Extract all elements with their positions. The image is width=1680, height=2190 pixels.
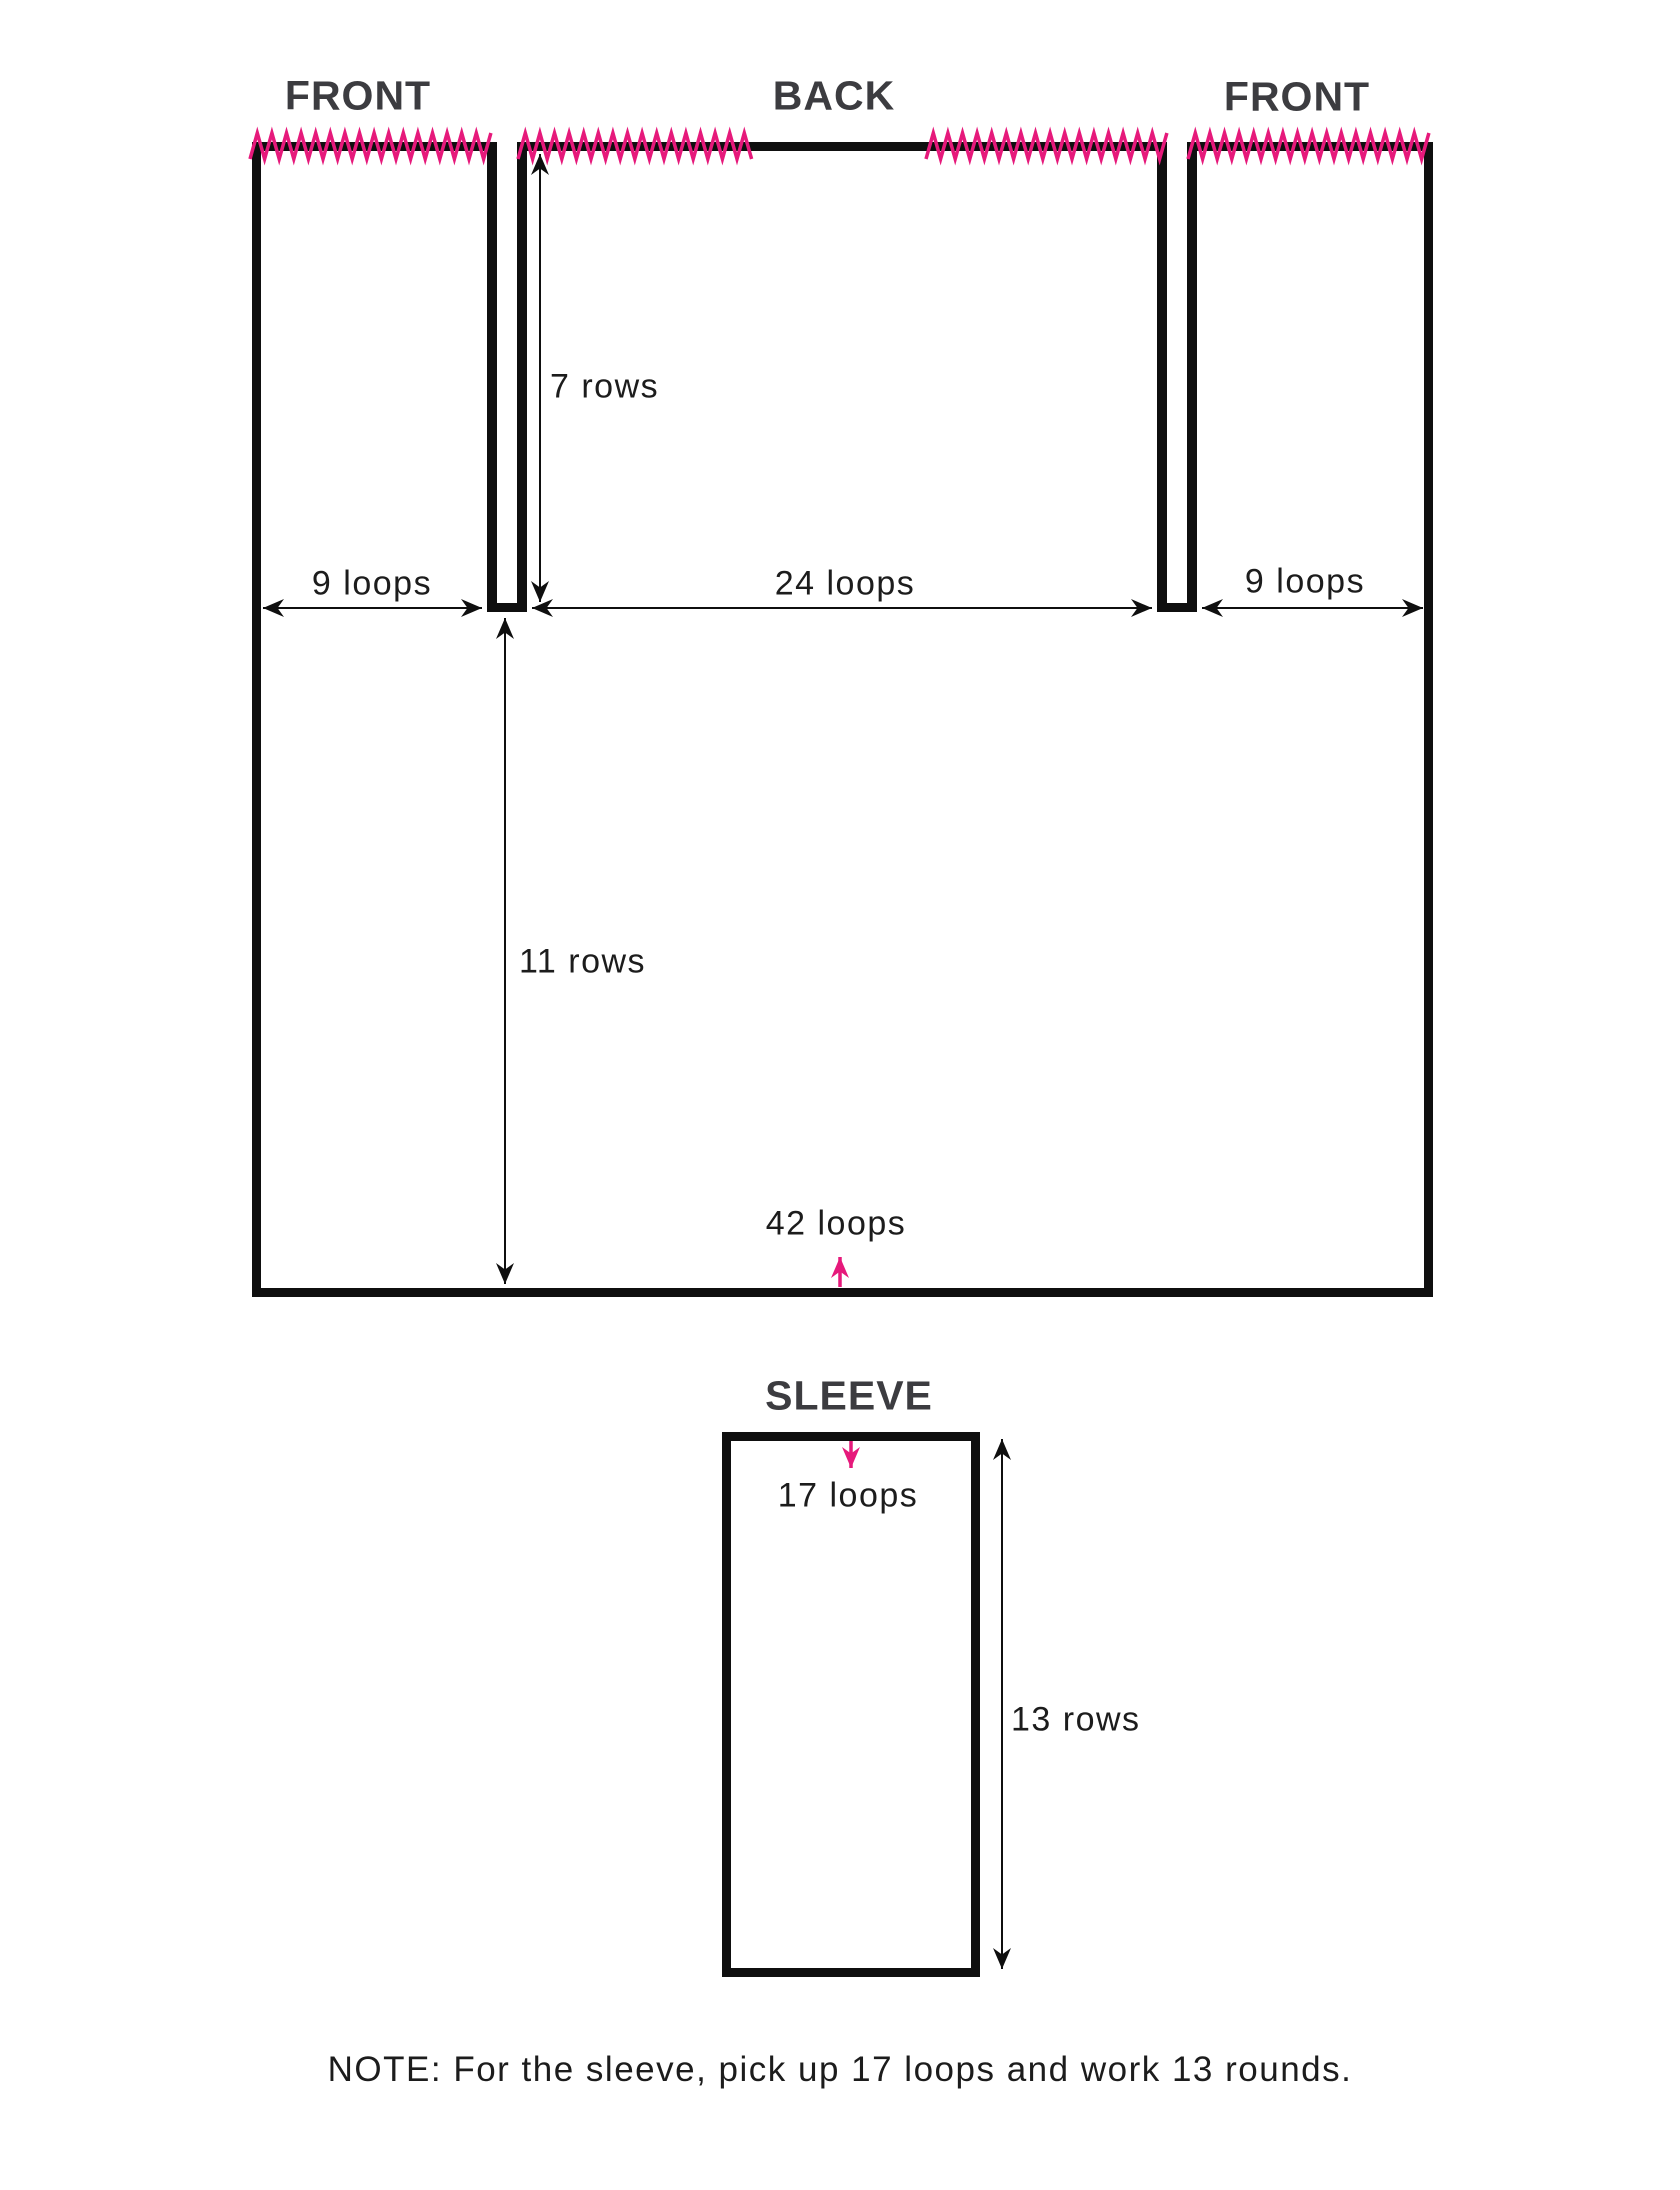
label-front-left-width: 9 loops	[312, 565, 432, 604]
note-text: NOTE: For the sleeve, pick up 17 loops a…	[0, 2050, 1680, 2090]
panel-title-front-right: FRONT	[1224, 74, 1370, 121]
label-front-right-width: 9 loops	[1245, 563, 1365, 602]
panel-title-sleeve: SLEEVE	[765, 1373, 933, 1420]
right-armhole-slit	[1157, 142, 1197, 612]
panel-title-front-left: FRONT	[285, 73, 431, 120]
label-sleeve-height: 13 rows	[1011, 1701, 1141, 1740]
label-sleeve-width: 17 loops	[778, 1477, 919, 1516]
label-yoke-height: 7 rows	[550, 368, 659, 407]
panel-title-back: BACK	[773, 73, 895, 120]
body-outline	[252, 142, 1433, 1297]
label-body-height: 11 rows	[519, 943, 646, 982]
label-back-width: 24 loops	[775, 565, 916, 604]
label-body-width: 42 loops	[766, 1205, 907, 1244]
left-armhole-slit	[487, 142, 527, 612]
knitting-schematic: FRONT BACK FRONT SLEEVE	[0, 0, 1680, 2190]
